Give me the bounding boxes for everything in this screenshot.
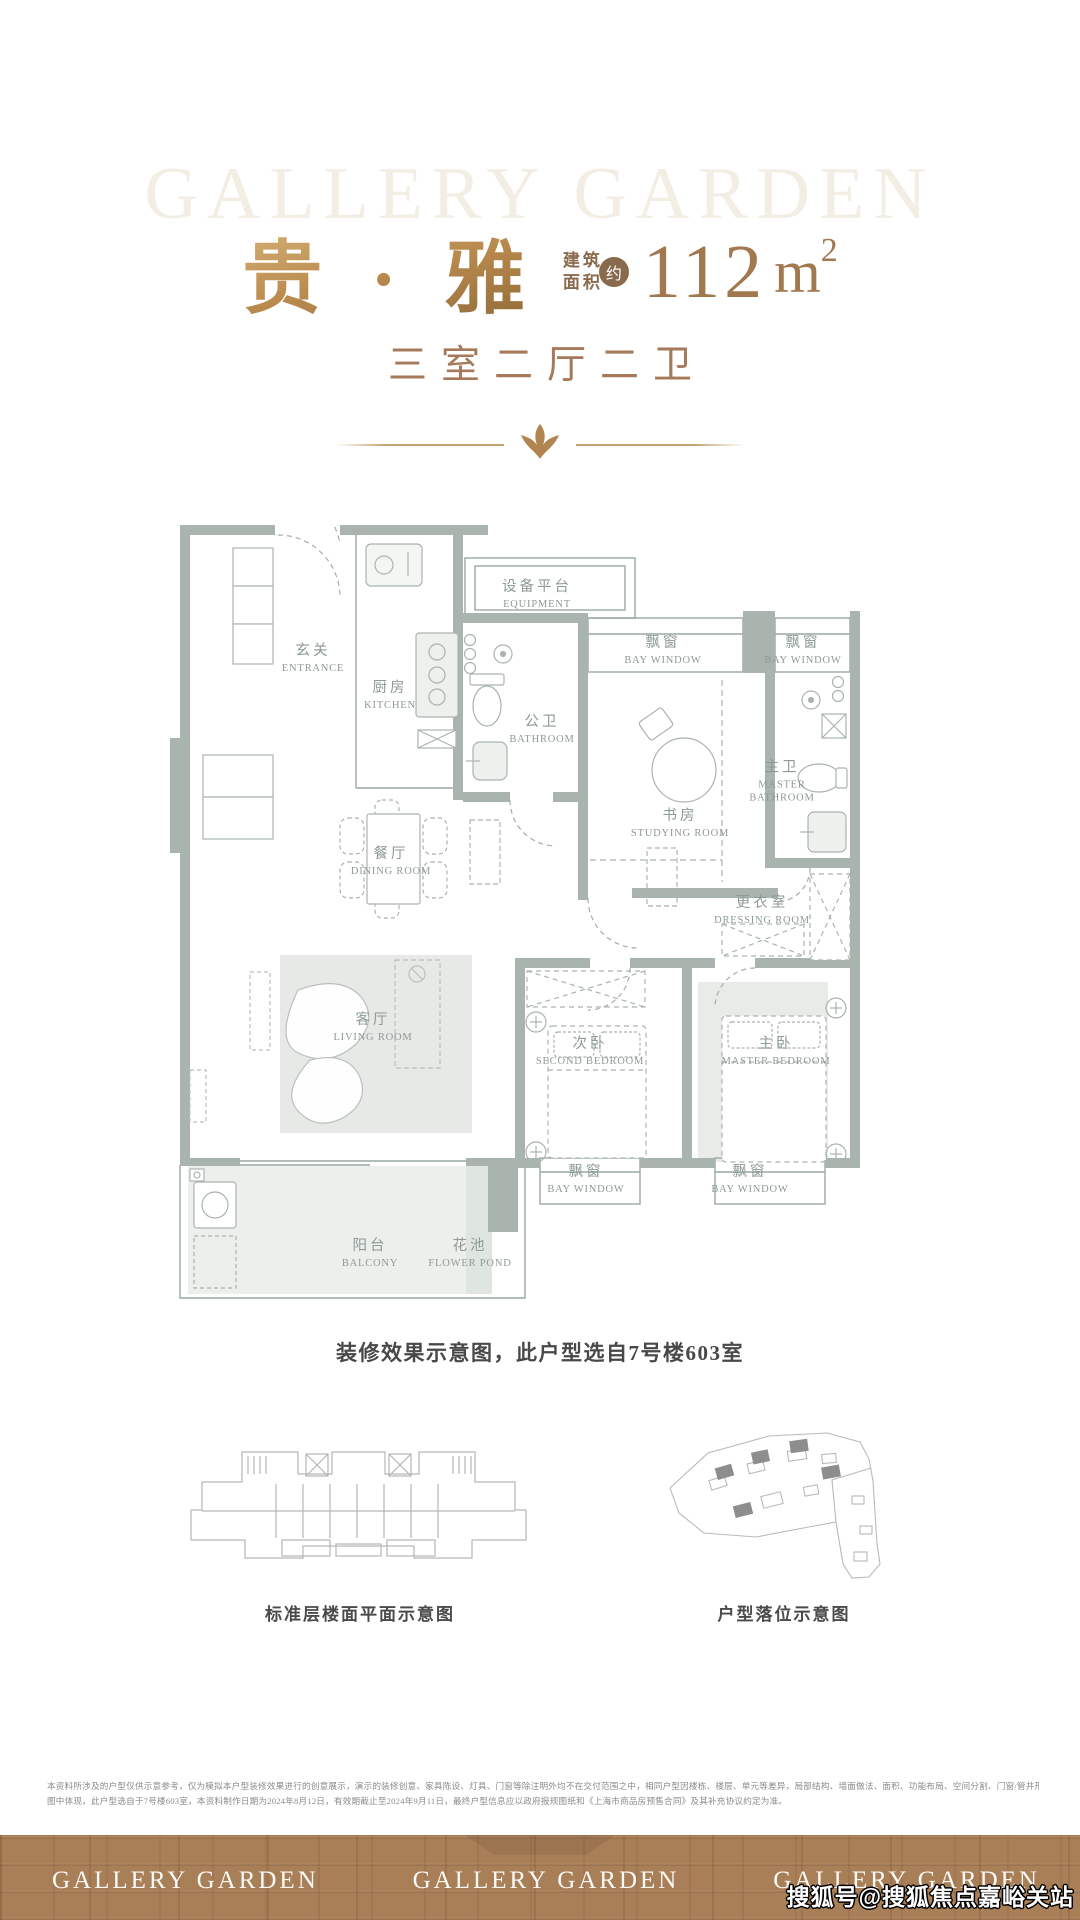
standard-floor-diagram xyxy=(186,1438,534,1588)
layout-subtitle: 三室二厅二卫 xyxy=(0,334,1080,390)
area-label: 建筑 面积 xyxy=(563,250,603,294)
footer-logo-center: GALLERY GARDEN xyxy=(413,1867,680,1895)
area-label-line2: 面积 xyxy=(563,272,603,294)
plan-caption: 装修效果示意图，此户型选自7号楼603室 xyxy=(0,1337,1080,1367)
unit-location-diagram xyxy=(664,1426,904,1590)
disclaimer: 本资料所涉及的户型仅供示意参考，仅为模拟本户型装修效果进行的创意展示，演示的装修… xyxy=(47,1779,1039,1808)
area-exponent: 2 xyxy=(821,234,838,268)
area-block: 建筑 面积 约 xyxy=(563,250,629,294)
area-label-line1: 建筑 xyxy=(563,250,603,272)
poster-page: GALLERY GARDEN 贵 · 雅 建筑 面积 约 112 m 2 三室二… xyxy=(0,0,1080,1920)
sohu-watermark: 搜狐号@搜狐焦点嘉峪关站 xyxy=(787,1878,1074,1912)
approx-badge: 约 xyxy=(599,257,629,287)
area-value: 112 m 2 xyxy=(643,234,838,310)
area-unit: m xyxy=(774,242,821,302)
footer-logo-left: GALLERY GARDEN xyxy=(52,1867,319,1895)
floor-plan: 玄关ENTRANCE厨房KITCHEN设备平台EQUIPMENT飘窗BAY WI… xyxy=(170,430,870,1310)
area-number: 112 xyxy=(643,234,766,310)
unit-location-caption: 户型落位示意图 xyxy=(664,1600,904,1625)
unit-name: 贵 · 雅 xyxy=(242,214,539,330)
disclaimer-line-1: 本资料所涉及的户型仅供示意参考，仅为模拟本户型装修效果进行的创意展示，演示的装修… xyxy=(47,1779,1039,1794)
disclaimer-line-2: 图中体现，此户型选自于7号楼603室，本资料制作日期为2024年8月12日，有效… xyxy=(47,1794,1039,1809)
floor-plan-drawing xyxy=(170,430,870,1310)
title-row: 贵 · 雅 建筑 面积 约 112 m 2 xyxy=(0,214,1080,330)
standard-floor-caption: 标准层楼面平面示意图 xyxy=(186,1600,534,1625)
